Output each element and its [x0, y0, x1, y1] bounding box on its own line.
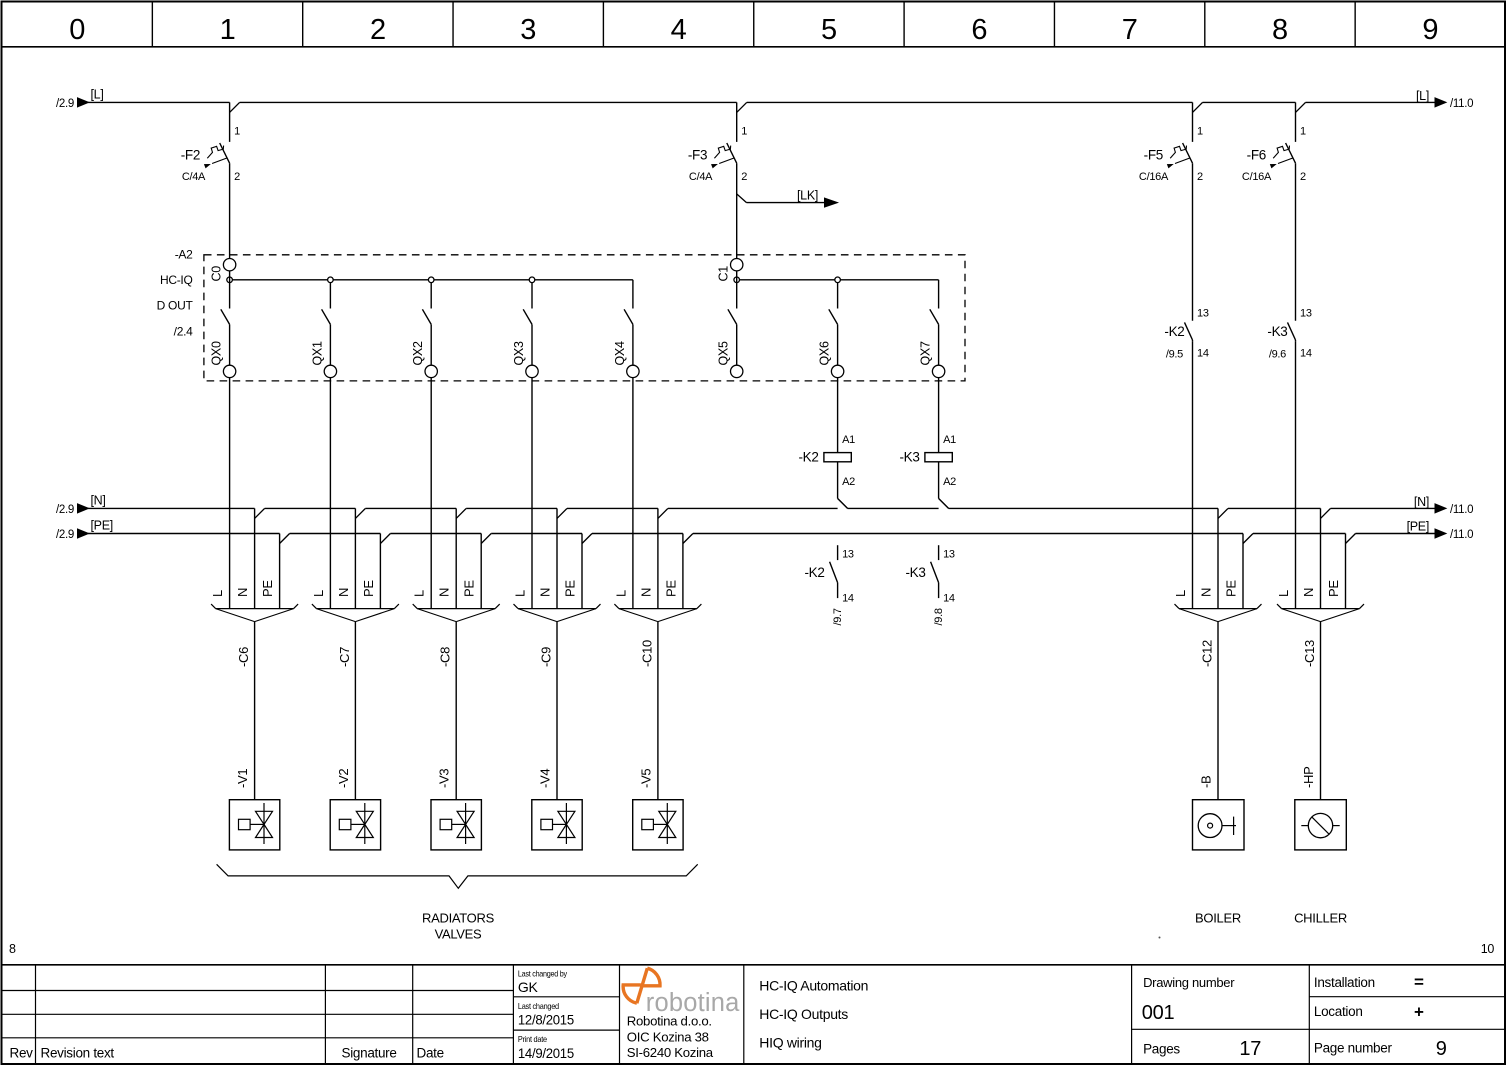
svg-text:PE: PE — [361, 580, 376, 597]
svg-text:CHILLER: CHILLER — [1294, 911, 1347, 926]
svg-text:QX6: QX6 — [818, 341, 832, 365]
svg-text:1: 1 — [234, 126, 240, 138]
svg-text:17: 17 — [1239, 1038, 1261, 1060]
svg-text:[LK]: [LK] — [797, 189, 818, 203]
svg-text:L: L — [1173, 590, 1188, 597]
svg-text:14: 14 — [943, 593, 955, 605]
svg-text:1: 1 — [220, 14, 236, 46]
svg-text:9: 9 — [1422, 14, 1438, 46]
svg-text:L: L — [210, 590, 225, 597]
svg-text:PE: PE — [260, 580, 275, 597]
svg-text:N: N — [538, 588, 553, 597]
svg-text:Revision text: Revision text — [41, 1046, 115, 1061]
svg-text:-F2: -F2 — [181, 148, 200, 163]
svg-text:RADIATORS: RADIATORS — [422, 911, 495, 926]
svg-text:[PE]: [PE] — [91, 518, 113, 532]
svg-text:/11.0: /11.0 — [1450, 529, 1473, 541]
svg-text:/2.9: /2.9 — [56, 529, 74, 541]
svg-text:-V1: -V1 — [235, 769, 250, 788]
svg-text:N: N — [1199, 588, 1214, 597]
svg-text:13: 13 — [842, 549, 854, 561]
svg-text:/2.4: /2.4 — [174, 324, 193, 338]
svg-text:C/16A: C/16A — [1242, 171, 1272, 183]
svg-text:-A2: -A2 — [175, 247, 193, 261]
svg-text:6: 6 — [971, 14, 987, 46]
svg-text:/9.6: /9.6 — [1269, 349, 1286, 361]
svg-text:HC-IQ: HC-IQ — [160, 273, 193, 287]
svg-text:-C13: -C13 — [1302, 640, 1317, 667]
svg-text:-K2: -K2 — [804, 565, 824, 580]
svg-text:L: L — [311, 590, 326, 597]
svg-text:PE: PE — [1224, 580, 1239, 597]
svg-text:N: N — [638, 588, 653, 597]
svg-text:PE: PE — [462, 580, 477, 597]
svg-text:Last changed by: Last changed by — [518, 969, 568, 979]
svg-text:HC-IQ Outputs: HC-IQ Outputs — [759, 1006, 848, 1022]
svg-text:PE: PE — [663, 580, 678, 597]
svg-text:QX7: QX7 — [919, 341, 933, 365]
svg-text:-C9: -C9 — [539, 647, 554, 667]
svg-text:A1: A1 — [943, 434, 956, 446]
svg-text:D OUT: D OUT — [157, 299, 194, 313]
svg-text:Page number: Page number — [1314, 1040, 1393, 1055]
svg-text:Rev: Rev — [10, 1046, 34, 1061]
svg-text:[PE]: [PE] — [1407, 520, 1429, 534]
svg-text:-V4: -V4 — [538, 769, 553, 788]
svg-text:/11.0: /11.0 — [1450, 504, 1473, 516]
svg-text:8: 8 — [9, 942, 16, 956]
svg-text:12/8/2015: 12/8/2015 — [518, 1012, 574, 1028]
svg-text:2: 2 — [234, 171, 240, 183]
svg-text:=: = — [1414, 973, 1424, 992]
svg-text:-C6: -C6 — [236, 647, 251, 667]
svg-text:L: L — [613, 590, 628, 597]
svg-text:C/4A: C/4A — [182, 171, 206, 183]
svg-text:-V3: -V3 — [437, 769, 452, 788]
svg-text:/2.9: /2.9 — [56, 504, 74, 516]
svg-text:QX2: QX2 — [411, 341, 425, 365]
svg-text:14/9/2015: 14/9/2015 — [518, 1045, 574, 1061]
svg-text:-F5: -F5 — [1144, 148, 1163, 163]
svg-text:001: 001 — [1142, 1002, 1175, 1024]
svg-text:A2: A2 — [943, 476, 956, 488]
svg-text:-B: -B — [1199, 776, 1214, 788]
svg-text:/9.8: /9.8 — [933, 608, 945, 625]
svg-text:Robotina d.o.o.: Robotina d.o.o. — [627, 1014, 712, 1029]
svg-text:-F6: -F6 — [1247, 148, 1266, 163]
svg-text:N: N — [235, 588, 250, 597]
svg-text:[L]: [L] — [1416, 89, 1429, 103]
svg-text:Pages: Pages — [1143, 1042, 1180, 1057]
svg-text:2: 2 — [1197, 171, 1203, 183]
svg-text:C/4A: C/4A — [689, 171, 713, 183]
svg-text:3: 3 — [520, 14, 536, 46]
svg-text:4: 4 — [671, 14, 687, 46]
svg-text:/9.7: /9.7 — [832, 608, 844, 625]
svg-text:Drawing number: Drawing number — [1143, 975, 1235, 990]
svg-text:N: N — [336, 588, 351, 597]
svg-text:VALVES: VALVES — [435, 927, 482, 942]
svg-text:[N]: [N] — [1414, 495, 1429, 509]
svg-text:2: 2 — [370, 14, 386, 46]
svg-text:SI-6240 Kozina: SI-6240 Kozina — [627, 1045, 714, 1060]
svg-text:QX4: QX4 — [613, 341, 627, 365]
svg-text:QX5: QX5 — [717, 341, 731, 365]
svg-text:10: 10 — [1481, 942, 1495, 956]
svg-text:7: 7 — [1122, 14, 1138, 46]
svg-text:Installation: Installation — [1314, 975, 1375, 990]
svg-text:1: 1 — [741, 126, 747, 138]
svg-text:13: 13 — [943, 549, 955, 561]
svg-text:/2.9: /2.9 — [56, 98, 74, 110]
svg-text:2: 2 — [741, 171, 747, 183]
svg-text:Location: Location — [1314, 1004, 1363, 1019]
svg-text:C1: C1 — [717, 266, 731, 282]
svg-text:-F3: -F3 — [688, 148, 707, 163]
svg-text:C/16A: C/16A — [1139, 171, 1169, 183]
svg-text:14: 14 — [842, 593, 854, 605]
svg-text:HC-IQ Automation: HC-IQ Automation — [759, 978, 868, 994]
svg-text:/11.0: /11.0 — [1450, 98, 1473, 110]
svg-text:13: 13 — [1197, 308, 1209, 320]
svg-text:QX3: QX3 — [512, 341, 526, 365]
svg-text:Signature: Signature — [342, 1046, 397, 1061]
svg-text:-K3: -K3 — [905, 565, 925, 580]
svg-text:GK: GK — [518, 979, 539, 995]
svg-text:-V5: -V5 — [638, 769, 653, 788]
svg-text:Print date: Print date — [518, 1034, 547, 1044]
svg-text:A2: A2 — [842, 476, 855, 488]
svg-text:HIQ wiring: HIQ wiring — [759, 1035, 821, 1051]
svg-text:L: L — [1276, 590, 1291, 597]
svg-text:OIC Kozina 38: OIC Kozina 38 — [627, 1029, 709, 1044]
svg-text:9: 9 — [1436, 1038, 1447, 1060]
svg-text:1: 1 — [1197, 126, 1203, 138]
svg-text:-K2: -K2 — [1164, 324, 1184, 339]
svg-text:-HP: -HP — [1301, 767, 1316, 789]
svg-text:-V2: -V2 — [336, 769, 351, 788]
svg-text:13: 13 — [1300, 308, 1312, 320]
svg-text:N: N — [437, 588, 452, 597]
svg-text:Last changed: Last changed — [518, 1001, 559, 1011]
svg-text:/9.5: /9.5 — [1166, 349, 1183, 361]
svg-text:A1: A1 — [842, 434, 855, 446]
svg-text:N: N — [1301, 588, 1316, 597]
svg-text:QX0: QX0 — [210, 341, 224, 365]
svg-text:-C12: -C12 — [1200, 640, 1215, 667]
svg-text:-C7: -C7 — [337, 647, 352, 667]
svg-text:C0: C0 — [210, 266, 224, 282]
svg-text:5: 5 — [821, 14, 837, 46]
svg-text:L: L — [412, 590, 427, 597]
svg-text:-K2: -K2 — [798, 450, 818, 465]
svg-text:-K3: -K3 — [1267, 324, 1287, 339]
svg-text:[N]: [N] — [91, 493, 106, 507]
svg-text:[L]: [L] — [91, 88, 104, 102]
svg-text:L: L — [513, 590, 528, 597]
svg-text:14: 14 — [1197, 348, 1209, 360]
svg-text:PE: PE — [1326, 580, 1341, 597]
svg-text:8: 8 — [1272, 14, 1288, 46]
svg-text:+: + — [1414, 1003, 1424, 1022]
svg-text:-C10: -C10 — [639, 640, 654, 667]
svg-text:QX1: QX1 — [310, 341, 324, 365]
svg-text:PE: PE — [563, 580, 578, 597]
svg-text:-K3: -K3 — [899, 450, 919, 465]
svg-text:Date: Date — [417, 1046, 444, 1061]
svg-text:-C8: -C8 — [438, 647, 453, 667]
svg-text:0: 0 — [69, 14, 85, 46]
svg-text:BOILER: BOILER — [1195, 911, 1241, 926]
svg-text:2: 2 — [1300, 171, 1306, 183]
svg-text:14: 14 — [1300, 348, 1312, 360]
svg-text:1: 1 — [1300, 126, 1306, 138]
